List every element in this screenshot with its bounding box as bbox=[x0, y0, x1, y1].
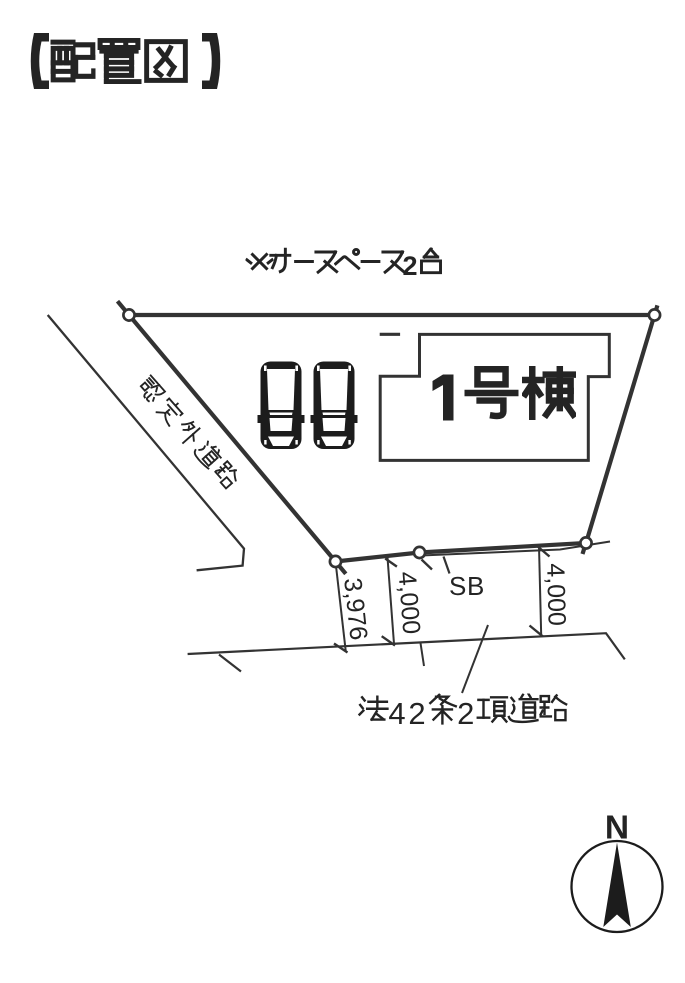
svg-text:B: B bbox=[467, 571, 484, 601]
svg-text:4,000: 4,000 bbox=[541, 563, 571, 626]
svg-text:2: 2 bbox=[457, 696, 474, 731]
svg-text:4,000: 4,000 bbox=[393, 571, 426, 636]
svg-text:4: 4 bbox=[388, 696, 405, 731]
svg-text:2: 2 bbox=[402, 251, 417, 281]
svg-text:N: N bbox=[605, 810, 629, 847]
svg-text:S: S bbox=[449, 571, 466, 601]
svg-text:2: 2 bbox=[408, 696, 425, 731]
